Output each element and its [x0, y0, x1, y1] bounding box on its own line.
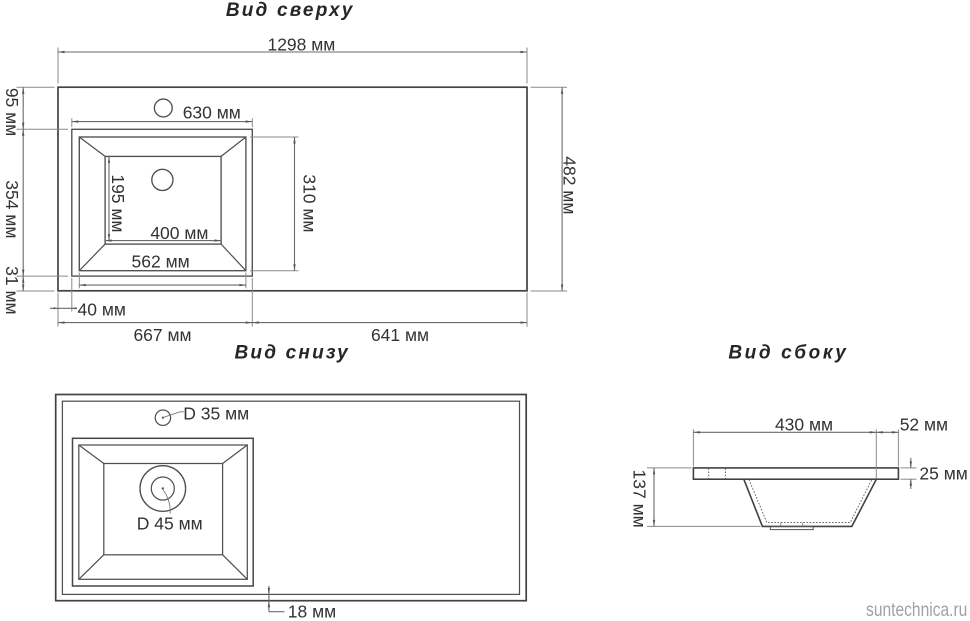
svg-text:482 мм: 482 мм	[560, 156, 580, 214]
svg-text:641 мм: 641 мм	[371, 325, 429, 345]
svg-text:354 мм: 354 мм	[2, 180, 22, 238]
svg-text:18 мм: 18 мм	[288, 602, 336, 621]
svg-text:630 мм: 630 мм	[183, 103, 241, 123]
svg-text:40 мм: 40 мм	[78, 299, 126, 319]
svg-text:suntechnica.ru: suntechnica.ru	[866, 598, 967, 620]
svg-text:Вид сверху: Вид сверху	[226, 0, 355, 21]
svg-text:430 мм: 430 мм	[775, 415, 833, 435]
svg-text:Вид сбоку: Вид сбоку	[728, 343, 848, 364]
svg-text:D 35 мм: D 35 мм	[183, 404, 249, 424]
svg-text:400 мм: 400 мм	[150, 223, 208, 243]
svg-text:562 мм: 562 мм	[132, 251, 190, 271]
svg-text:95 мм: 95 мм	[2, 88, 22, 136]
svg-text:52 мм: 52 мм	[900, 415, 948, 435]
svg-text:25 мм: 25 мм	[919, 463, 967, 483]
svg-text:137 мм: 137 мм	[630, 470, 650, 528]
svg-text:31 мм: 31 мм	[2, 266, 22, 314]
svg-text:667 мм: 667 мм	[133, 325, 191, 345]
svg-text:1298 мм: 1298 мм	[267, 34, 335, 54]
svg-text:195 мм: 195 мм	[108, 174, 128, 232]
svg-text:310 мм: 310 мм	[300, 174, 320, 232]
svg-text:Вид снизу: Вид снизу	[235, 343, 350, 364]
svg-text:D 45 мм: D 45 мм	[137, 514, 203, 534]
